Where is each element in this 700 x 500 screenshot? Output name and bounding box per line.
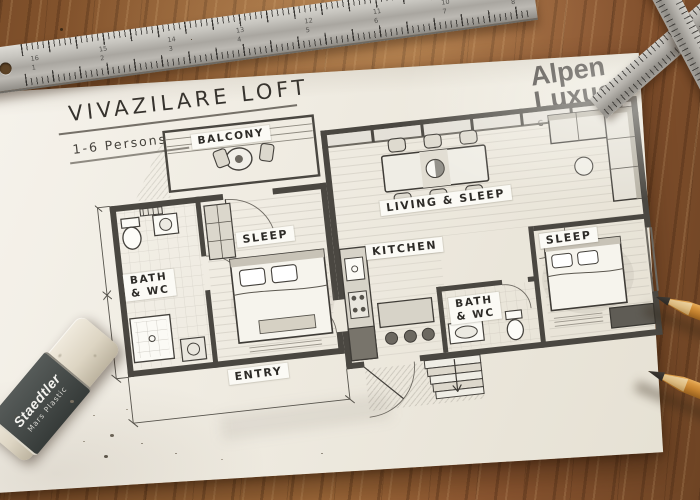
square-ticks-3 xyxy=(663,0,700,193)
ruler-number: 3 xyxy=(168,45,173,53)
ruler-number: 13 xyxy=(235,26,244,35)
floor-plan-sketch xyxy=(87,71,674,449)
ruler-number: 16 xyxy=(30,54,39,63)
eraser-crumbs xyxy=(70,400,74,403)
wood-specks xyxy=(60,28,63,31)
desk-scene: VIVAZILARE LOFT 1-6 Persons Alpen Luxus … xyxy=(0,0,700,500)
ruler-number: 8 xyxy=(511,0,516,6)
ruler-hole xyxy=(0,62,12,76)
paper-sheet: VIVAZILARE LOFT 1-6 Persons Alpen Luxus … xyxy=(0,53,663,494)
ruler-number: 1 xyxy=(31,63,36,71)
floor-plan: BALCONY SLEEP BATH & WC LIVING & SLEEP K… xyxy=(87,71,674,449)
ruler-number: 4 xyxy=(237,35,242,43)
ruler-number: 12 xyxy=(304,16,313,25)
ruler-number: 14 xyxy=(167,35,176,44)
ruler-number: 7 xyxy=(442,7,447,15)
ruler-number: 5 xyxy=(305,26,310,34)
ruler-number: 11 xyxy=(372,7,381,16)
ruler-number: 15 xyxy=(98,45,107,54)
ruler-number: 6 xyxy=(374,17,379,25)
ruler-number: 2 xyxy=(100,54,105,62)
